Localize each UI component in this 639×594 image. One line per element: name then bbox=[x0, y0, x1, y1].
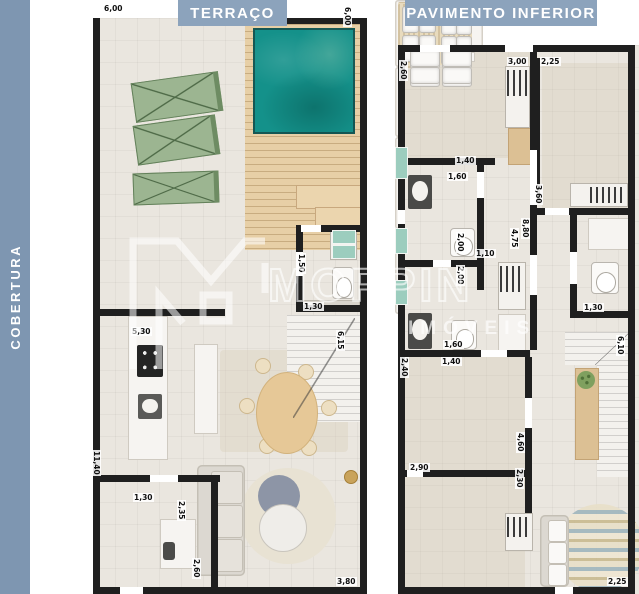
dimension-label: 1,50 bbox=[297, 253, 306, 274]
door-gap-bottom bbox=[555, 587, 573, 594]
living-sofa-pillow-3 bbox=[548, 564, 567, 586]
floor-lamp-gold bbox=[344, 470, 358, 484]
wall-right bbox=[628, 52, 635, 594]
dimension-label: 11,40 bbox=[93, 450, 101, 476]
door-gap-closet bbox=[150, 475, 178, 482]
dining-chair-3 bbox=[239, 398, 255, 414]
dimension-label: 2,25 bbox=[540, 57, 561, 66]
toilet bbox=[332, 267, 354, 299]
dimension-label: 6,00 bbox=[343, 6, 352, 27]
wall-bed4-right bbox=[525, 477, 532, 513]
kitchen-sink bbox=[138, 394, 162, 419]
coffee-table-marble bbox=[259, 504, 307, 552]
dimension-label: 1,10 bbox=[475, 249, 496, 258]
kitchen-counter bbox=[128, 316, 168, 460]
dimension-label: 4,75 bbox=[510, 228, 519, 249]
washer-glass-door-1 bbox=[332, 230, 356, 244]
bed4-pillow-2 bbox=[442, 50, 472, 67]
door-gap-corridor-2 bbox=[530, 255, 537, 295]
living-sofa-pillow-1 bbox=[548, 520, 567, 542]
window-gap-top-2 bbox=[505, 45, 533, 52]
wall-bath3-bottom bbox=[577, 311, 635, 318]
bedroom1-wood-desk bbox=[508, 128, 532, 165]
door-gap-bath-top bbox=[301, 225, 321, 232]
bed4-pillow-1 bbox=[410, 50, 440, 67]
dimension-label: 1,40 bbox=[441, 357, 462, 366]
bathroom3-toilet bbox=[591, 262, 619, 294]
dimension-label: 6,10 bbox=[616, 335, 625, 356]
deck-step-2 bbox=[315, 207, 362, 227]
sun-lounger-3 bbox=[132, 171, 219, 206]
dresser2-items bbox=[590, 187, 624, 203]
dimension-label: 1,40 bbox=[455, 156, 476, 165]
deck-step-1 bbox=[296, 185, 362, 209]
hall-closet-clothes bbox=[500, 266, 524, 292]
pavimento-inferior-title: PAVIMENTO INFERIOR bbox=[406, 5, 596, 22]
dimension-label: 3,00 bbox=[507, 57, 528, 66]
dimension-label: 1,30 bbox=[133, 493, 154, 502]
door-gap-bottom bbox=[120, 587, 143, 594]
dimension-label: 6,00 bbox=[103, 4, 124, 13]
dimension-label: 4,60 bbox=[516, 432, 525, 453]
kitchen-island bbox=[194, 344, 218, 434]
bathroom1-sink bbox=[408, 175, 432, 209]
dimension-label: 2,00 bbox=[456, 265, 465, 286]
washer-glass-door-2 bbox=[332, 245, 356, 259]
dimension-label: 2,25 bbox=[607, 577, 628, 586]
door-gap-bath3 bbox=[570, 252, 577, 284]
plan-pavimento-inferior: 2,603,002,251,401,603,602,001,102,004,75… bbox=[395, 0, 639, 594]
dimension-label: 2,00 bbox=[456, 232, 465, 253]
glass-window-2 bbox=[395, 228, 408, 254]
window-gap-top-1 bbox=[420, 45, 450, 52]
cobertura-label: COBERTURA bbox=[8, 244, 23, 350]
vanity-chair bbox=[163, 542, 175, 560]
bedroom3-floor bbox=[405, 357, 525, 470]
plan-terraco: 6,006,001,501,306,155,3011,401,302,352,6… bbox=[93, 0, 367, 594]
stairs-run bbox=[597, 365, 632, 477]
stair-rail bbox=[293, 318, 355, 418]
bathroom2-sink bbox=[408, 313, 432, 349]
hall-counter bbox=[498, 314, 526, 352]
living-sofa bbox=[540, 515, 569, 587]
plant bbox=[577, 371, 595, 389]
glass-window-1 bbox=[395, 147, 408, 179]
wall-bottom bbox=[398, 587, 635, 594]
dimension-label: 1,30 bbox=[303, 302, 324, 311]
wall-bed3-top bbox=[403, 350, 530, 357]
dimension-label: 1,30 bbox=[583, 303, 604, 312]
cobertura-banner: COBERTURA bbox=[0, 0, 30, 594]
door-gap-bed2 bbox=[545, 208, 569, 215]
door-gap-bed3-right bbox=[525, 398, 532, 428]
wall-kitchen-top bbox=[100, 309, 225, 316]
closet4-clothes bbox=[507, 517, 531, 537]
wardrobe1-clothes bbox=[507, 70, 528, 96]
dimension-label: 8,80 bbox=[521, 218, 530, 239]
stove bbox=[137, 345, 163, 377]
bed4-pillow-4 bbox=[442, 67, 472, 84]
wall-bed1-bottom bbox=[403, 158, 495, 165]
terraco-title: TERRAÇO bbox=[190, 5, 275, 22]
dimension-label: 2,30 bbox=[515, 468, 524, 489]
dimension-label: 2,40 bbox=[400, 357, 409, 378]
wall-left bbox=[398, 45, 405, 594]
door-gap-bath-divider bbox=[433, 260, 451, 267]
window-gap-left bbox=[398, 210, 405, 224]
dimension-label: 2,60 bbox=[192, 558, 201, 579]
dining-chair-1 bbox=[255, 358, 271, 374]
dimension-label: 2,60 bbox=[399, 60, 408, 81]
bed4-pillow-3 bbox=[410, 67, 440, 84]
dimension-label: 5,30 bbox=[131, 327, 152, 336]
floorplan-sheet: COBERTURA bbox=[0, 0, 639, 594]
wall-left bbox=[93, 18, 100, 594]
dimension-label: 6,15 bbox=[336, 330, 345, 351]
glass-window-3 bbox=[395, 280, 408, 305]
living-sofa-pillow-2 bbox=[548, 542, 567, 564]
dimension-label: 3,60 bbox=[534, 184, 543, 205]
dimension-label: 2,35 bbox=[177, 500, 186, 521]
dimension-label: 1,60 bbox=[447, 172, 468, 181]
door-gap-bath-mid bbox=[477, 172, 484, 198]
dimension-label: 1,60 bbox=[443, 340, 464, 349]
terraco-title-badge: TERRAÇO bbox=[178, 0, 287, 26]
dimension-label: 3,80 bbox=[336, 577, 357, 586]
door-gap-bed3 bbox=[481, 350, 507, 357]
bathroom3-counter bbox=[588, 218, 630, 250]
dimension-label: 2,90 bbox=[409, 463, 430, 472]
pavimento-inferior-title-badge: PAVIMENTO INFERIOR bbox=[405, 0, 597, 26]
wall-closet-right bbox=[211, 475, 218, 594]
swimming-pool bbox=[253, 28, 355, 134]
